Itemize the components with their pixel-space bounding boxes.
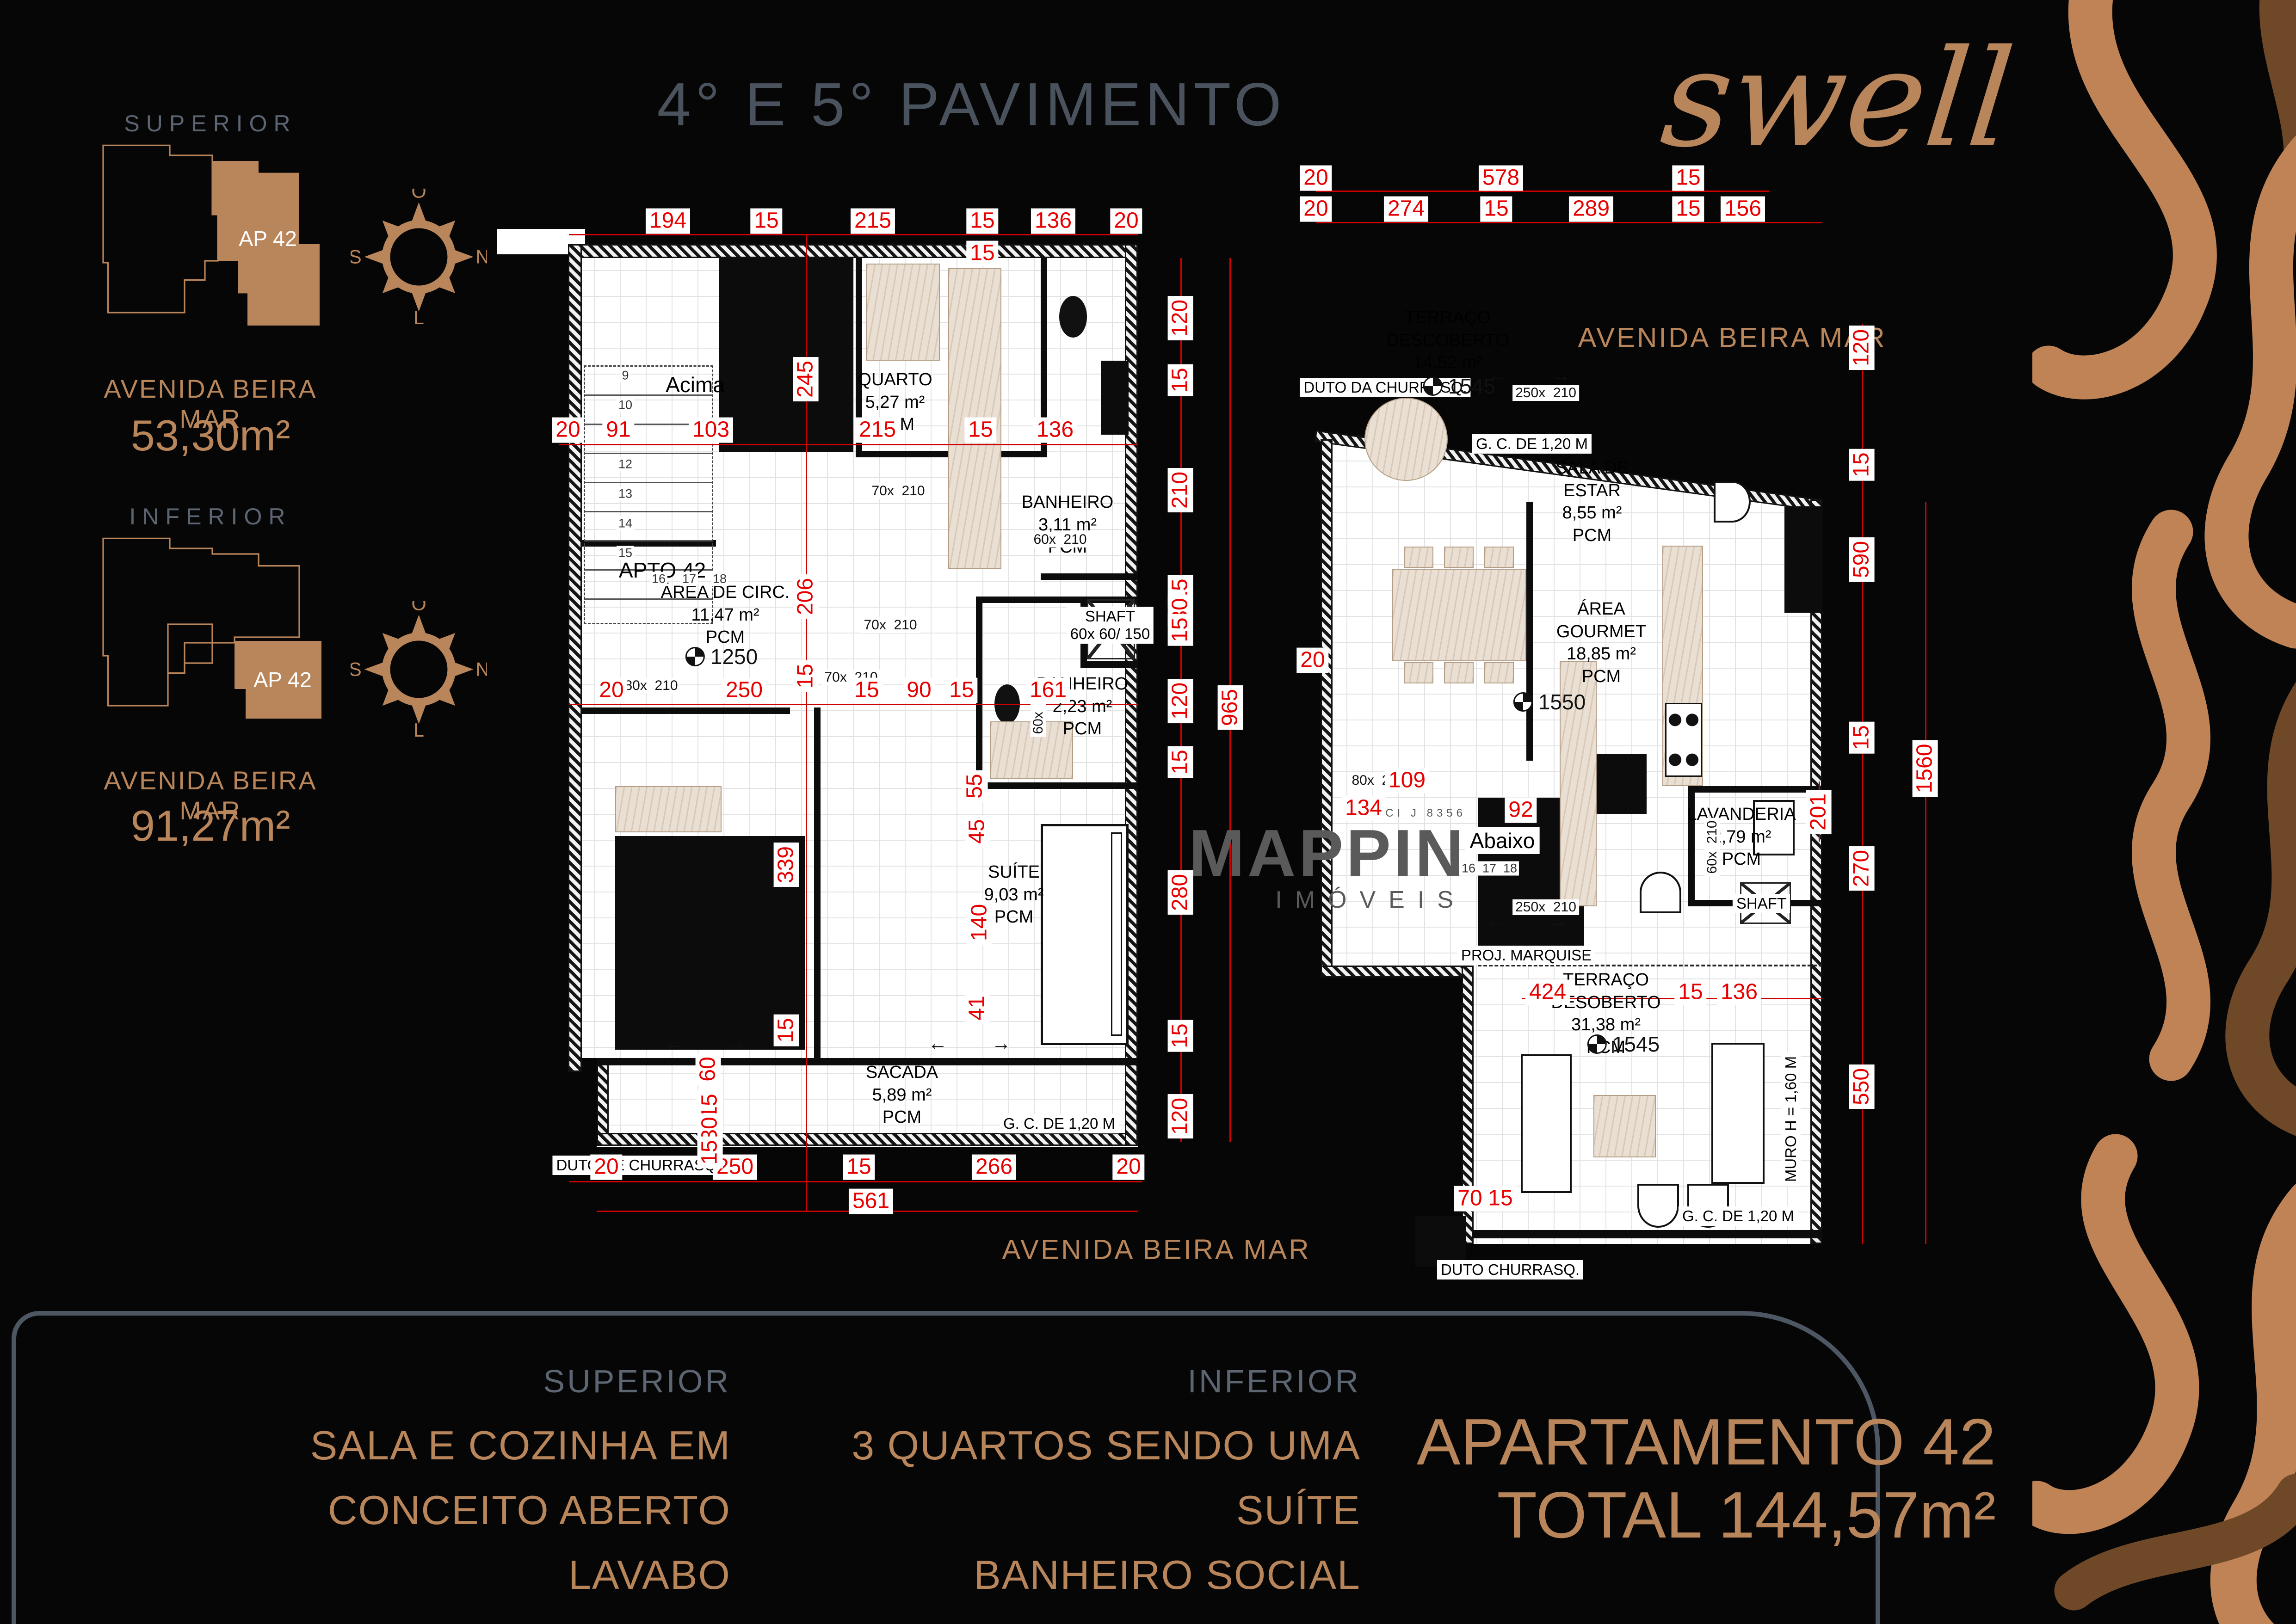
plan-tag: MURO H = 1,60 M [1781, 1052, 1801, 1186]
dining-table-furniture [1392, 569, 1526, 661]
room-label: SALA DE ESTAR 8,55 m² PCM [1555, 457, 1629, 547]
barbecue-grill [1640, 872, 1681, 913]
room-label: LAVANDERIA 2,79 m² PCM [1687, 803, 1796, 871]
closet-mass [1784, 506, 1821, 613]
quarto-closet-furniture [866, 264, 940, 361]
room-label: ÁREA DE CIRC. 11,47 m² PCM [661, 581, 790, 649]
dimension-label: 15 [1672, 166, 1704, 191]
plan-cutout [1321, 971, 1471, 1244]
door-size-label: 70x 210 [861, 617, 920, 633]
wall [1526, 502, 1533, 761]
stair-number: 17 [680, 572, 698, 586]
compass-letter-bottom: L [414, 720, 424, 738]
fire-table [1593, 1095, 1656, 1157]
door-size-label: 80x 210 [622, 678, 680, 694]
wall [582, 707, 790, 714]
dimension-label: 194 [646, 209, 690, 234]
wardrobe-furniture [719, 258, 853, 452]
dimension-label: 70 [1454, 1186, 1486, 1212]
level-marker: 1250 [685, 644, 758, 669]
apartment-number: APARTAMENTO 42 [1383, 1406, 1996, 1479]
dimension-label: 201 [1806, 790, 1832, 834]
dimension-label: 91 [602, 418, 634, 443]
footer-superior-line: TERRAÇO COM CHURRASQUEIRA [46, 1607, 731, 1624]
plan-tag: SHAFT [1733, 894, 1790, 913]
key-inferior-ap: AP 42 [253, 668, 312, 692]
dimension-label: 561 [849, 1189, 893, 1214]
level-symbol-icon [1513, 692, 1533, 712]
dimension-line [1316, 191, 1769, 192]
apartment-total-area: TOTAL 144,57m² [1383, 1479, 1996, 1552]
sofa-furniture [1521, 1054, 1572, 1193]
chair [1484, 547, 1514, 568]
dimension-label: 15 [1674, 980, 1706, 1005]
room-label: SACADA 5,89 m² PCM [866, 1061, 938, 1129]
level-marker: 1550 [1513, 689, 1586, 714]
chair [1404, 547, 1433, 568]
dimension-label: 15 [750, 209, 782, 234]
dimension-label: 120 [1168, 296, 1193, 340]
wall [1080, 661, 1138, 668]
dimension-label: 424 [1525, 980, 1570, 1005]
direction-arrow-icon: ← → [1487, 364, 1581, 387]
swell-logo: swell [1654, 32, 2019, 166]
dimension-line [569, 234, 1138, 235]
level-marker: 1545 [1423, 374, 1495, 399]
dimension-label: 215 [855, 418, 900, 443]
key-inferior-footprint: AP 42 [90, 532, 331, 724]
footer-inferior-line: 3 QUARTOS SENDO UMA SUÍTE [763, 1413, 1361, 1543]
dimension-label: 20 [552, 418, 584, 443]
wall [1473, 1230, 1822, 1238]
stair-number: 12 [617, 457, 634, 472]
dimension-label: 15 [1672, 197, 1704, 222]
wall [1041, 573, 1138, 580]
dimension-label: 45 [965, 815, 990, 847]
toilet-fixture [1059, 296, 1087, 338]
dimension-line [559, 444, 1138, 445]
dimension-label: 60 [696, 1053, 721, 1085]
dimension-label: 92 [1505, 798, 1537, 823]
footer-superior-line: SALA E COZINHA EM [46, 1413, 731, 1478]
dimension-label: 280 [1168, 870, 1193, 915]
footer-superior-line: LAVABO [46, 1543, 731, 1607]
direction-arrow-icon: ← → [928, 1032, 1022, 1054]
dimension-label: 1560 [1913, 740, 1938, 797]
dimension-label: 120 [1849, 326, 1875, 370]
dimension-label: 215 [851, 209, 895, 234]
churrasco-duct [1415, 1216, 1466, 1267]
dimension-label: 274 [1384, 197, 1428, 222]
dimension-label: 15 [851, 678, 883, 703]
dimension-label: 15 [1168, 746, 1193, 778]
stair-number: 9 [620, 369, 630, 383]
dimension-label: 289 [1569, 197, 1613, 222]
watermark: CRECI J 8356 MAPPIN IMÓVEIS [1087, 807, 1466, 913]
compass-letter-bottom: L [414, 307, 424, 325]
dimension-label: 15 [1168, 614, 1193, 646]
dimension-label: 15 [1484, 1186, 1516, 1212]
level-symbol-icon [1587, 1034, 1607, 1054]
dimension-label: 15 [1849, 721, 1875, 753]
door-size-label: 70x 210 [869, 483, 927, 499]
dimension-label: 245 [793, 357, 819, 401]
dimension-label: 550 [1849, 1064, 1875, 1109]
door-size-label: 250x 210 [1512, 385, 1579, 401]
dimension-label: 15 [966, 209, 998, 234]
dimension-line [1925, 502, 1926, 1244]
pizza-oven [1714, 481, 1751, 523]
watermark-sub: IMÓVEIS [1087, 887, 1466, 913]
dimension-label: 90 [903, 678, 935, 703]
level-marker: 1545 [1587, 1032, 1660, 1057]
dimension-label: 578 [1479, 166, 1523, 191]
level-symbol-icon [685, 647, 705, 666]
compass-letter-top: O [411, 601, 426, 615]
dimension-label: 20 [1296, 648, 1328, 673]
sink-counter [1101, 361, 1129, 435]
watermark-name: MAPPIN [1087, 820, 1466, 887]
stove-cooktop [1665, 703, 1702, 777]
dimension-label: 590 [1849, 537, 1875, 582]
room-label: SUÍTE 9,03 m² PCM [984, 861, 1044, 929]
wall [597, 1133, 1138, 1146]
dimension-label: 161 [1026, 678, 1070, 703]
dimension-label: 20 [1300, 197, 1332, 222]
plan-tag: G. C. DE 1,20 M [1000, 1114, 1119, 1133]
wall [568, 244, 582, 1072]
footer-superior-title: SUPERIOR [46, 1349, 731, 1413]
wall [814, 707, 821, 1059]
dimension-label: 156 [1721, 197, 1765, 222]
footer-inferior-block: INFERIOR 3 QUARTOS SENDO UMA SUÍTE BANHE… [763, 1349, 1361, 1607]
dimension-label: 20 [1112, 1155, 1144, 1180]
dresser-furniture [615, 786, 722, 832]
key-inferior-area: 91,27m² [72, 801, 349, 851]
dimension-label: 20 [1300, 166, 1332, 191]
stair-number: 16 [650, 572, 667, 586]
dimension-label: 134 [1341, 796, 1386, 821]
plan-tag: SHAFT 60x 60/ 150 [1067, 607, 1154, 644]
compass-letter-left: S [351, 658, 362, 680]
dimension-label: 270 [1849, 846, 1875, 891]
plan-note: Acima [666, 372, 725, 397]
dimension-label: 109 [1385, 768, 1429, 794]
dimension-line [569, 1181, 1142, 1182]
dimension-label: 339 [774, 843, 799, 887]
street-label: AVENIDA BEIRA MAR [1578, 322, 1886, 354]
plan-tag: DUTO CHURRASQ. [1437, 1260, 1583, 1280]
dimension-label: 20 [595, 678, 627, 703]
dimension-label: 41 [965, 992, 990, 1024]
compass-letter-right: N [475, 658, 487, 680]
dimension-label: 965 [1218, 685, 1243, 730]
stair-number: 13 [617, 487, 634, 501]
dimension-label: 140 [967, 900, 993, 945]
plan-note: Abaixo [1465, 827, 1540, 854]
direction-arrow-icon: ← → [1485, 910, 1579, 932]
key-superior-footprint: AP 42 [90, 139, 331, 331]
dimension-label: 250 [722, 678, 766, 703]
compass-letter-left: S [351, 246, 362, 267]
stair-number: 16 17 18 [1460, 861, 1519, 876]
level-value: 1250 [710, 644, 758, 669]
dimension-label: 55 [963, 770, 988, 802]
stair-number: 18 [711, 572, 728, 586]
sofa-furniture [1711, 1043, 1765, 1184]
round-table-furniture [1364, 398, 1448, 481]
dimension-label: 103 [689, 418, 733, 443]
dimension-label: 120 [1168, 679, 1193, 723]
room-label: ÁREA GOURMET 18,85 m² PCM [1556, 598, 1646, 688]
page-title: 4° E 5° PAVIMENTO [648, 69, 1295, 139]
level-value: 1545 [1448, 374, 1495, 399]
dimension-label: 266 [972, 1155, 1016, 1180]
footer-apartment-block: APARTAMENTO 42 TOTAL 144,57m² [1383, 1406, 1996, 1552]
door-size-label: 60x 210 [1031, 532, 1089, 547]
dimension-label: 136 [1717, 980, 1761, 1005]
wall [976, 782, 1138, 789]
dimension-label: 120 [1168, 1094, 1193, 1138]
compass-rose-inferior: O N L S [351, 601, 487, 738]
key-superior-title: SUPERIOR [72, 110, 349, 137]
direction-arrow-icon: ← → [664, 1032, 758, 1054]
door-size-label: 60x 210 [1704, 818, 1720, 876]
dimension-label: 20 [1110, 209, 1142, 234]
dimension-label: 15 [843, 1155, 875, 1180]
floorplan-sheet: 4° E 5° PAVIMENTO swell SUPERIOR AP 42 A… [0, 0, 2296, 1624]
dimension-label: 15 [1168, 364, 1193, 396]
dimension-line [1316, 222, 1822, 223]
dimension-label: 15 [945, 678, 977, 703]
footer-inferior-line: BANHEIRO SOCIAL [763, 1543, 1361, 1607]
dimension-label: 15 [1480, 197, 1512, 222]
chair [1404, 662, 1433, 683]
compass-letter-right: N [475, 246, 487, 267]
wall [1321, 966, 1473, 978]
dimension-label: 15 [793, 660, 819, 692]
dimension-label: 15 [1849, 449, 1875, 480]
room-label: BANHEIRO 3,11 m² PCM [1022, 491, 1113, 559]
footer-superior-block: SUPERIOR SALA E COZINHA EM CONCEITO ABER… [46, 1349, 731, 1624]
chair [1484, 662, 1514, 683]
dimension-label: 20 [590, 1155, 622, 1180]
wall [1688, 786, 1822, 793]
level-symbol-icon [1423, 376, 1443, 396]
decorative-wave-pattern [2032, 0, 2296, 1624]
stair-number: 10 [617, 398, 634, 412]
chair [1444, 662, 1474, 683]
dimension-label: 206 [793, 574, 819, 619]
plan-tag: PROJ. MARQUISE [1457, 946, 1595, 965]
plan-tag: G. C. DE 1,20 M [1472, 434, 1592, 454]
dimension-label: 15 [774, 1014, 799, 1046]
dimension-label: 210 [1168, 468, 1193, 512]
level-value: 1545 [1612, 1032, 1660, 1057]
dimension-label: 15 [697, 1136, 723, 1168]
level-value: 1550 [1538, 689, 1586, 714]
dimension-label: 15 [1168, 1020, 1193, 1052]
key-superior-ap: AP 42 [239, 227, 297, 251]
wall [568, 244, 1138, 258]
plan-tag: G. C. DE 1,20 M [1679, 1206, 1798, 1226]
key-superior-area: 53,30m² [72, 411, 349, 461]
dimension-label: 136 [1033, 418, 1077, 443]
footer-superior-line: CONCEITO ABERTO [46, 1478, 731, 1543]
dimension-label: 136 [1031, 209, 1075, 234]
key-inferior-title: INFERIOR [72, 503, 349, 530]
stair-number: 15 [617, 546, 634, 560]
street-label: AVENIDA BEIRA MAR [1002, 1234, 1310, 1266]
dimension-label: 15 [964, 418, 996, 443]
dimension-label: 15 [966, 241, 998, 266]
compass-letter-top: O [411, 189, 426, 202]
footer-inferior-title: INFERIOR [763, 1349, 1361, 1413]
stair-number: 14 [617, 517, 634, 531]
stool-furniture [1637, 1184, 1679, 1228]
chair [1444, 547, 1474, 568]
compass-rose-superior: O N L S [351, 189, 487, 325]
